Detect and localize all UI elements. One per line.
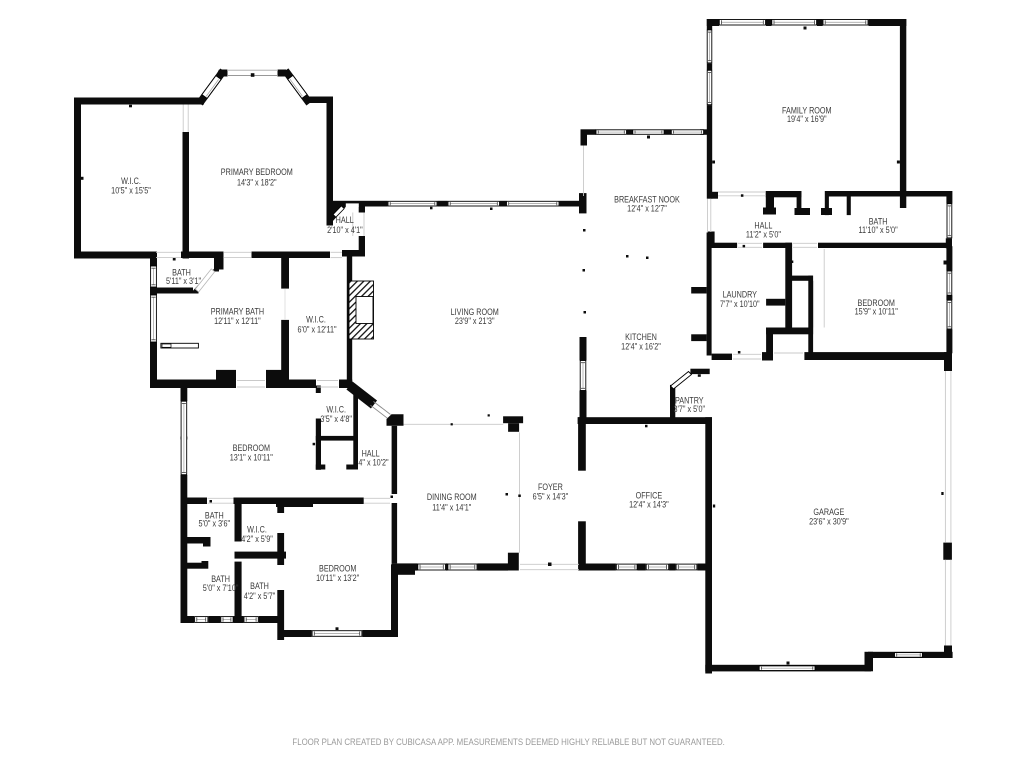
svg-text:6'0" x 12'11": 6'0" x 12'11" [297, 323, 336, 334]
svg-text:11'10" x 5'0": 11'10" x 5'0" [859, 224, 898, 235]
svg-text:FLOOR PLAN CREATED BY CUBICASA: FLOOR PLAN CREATED BY CUBICASA APP. MEAS… [292, 736, 724, 747]
svg-text:11'2" x 5'0": 11'2" x 5'0" [746, 229, 781, 240]
svg-text:12'11" x 12'11": 12'11" x 12'11" [214, 315, 261, 326]
svg-text:23'9" x 21'3": 23'9" x 21'3" [455, 315, 495, 326]
svg-text:19'4" x 16'9": 19'4" x 16'9" [787, 113, 827, 124]
svg-text:4" x 10'2": 4" x 10'2" [358, 457, 388, 468]
svg-text:15'9" x 10'11": 15'9" x 10'11" [855, 306, 898, 317]
svg-text:23'6" x 30'9": 23'6" x 30'9" [809, 515, 849, 526]
svg-text:5'0" x 3'6": 5'0" x 3'6" [198, 517, 230, 528]
svg-text:4'2" x 5'9": 4'2" x 5'9" [241, 533, 273, 544]
svg-text:10'11" x 13'2": 10'11" x 13'2" [316, 572, 359, 583]
svg-text:3'5" x 4'8": 3'5" x 4'8" [320, 413, 352, 424]
svg-text:5'11" x 3'1": 5'11" x 3'1" [166, 275, 201, 286]
svg-text:12'4" x 14'3": 12'4" x 14'3" [629, 499, 669, 510]
svg-text:2'10" x 4'1": 2'10" x 4'1" [327, 224, 363, 235]
svg-text:14'3" x 18'2": 14'3" x 18'2" [237, 176, 277, 187]
svg-text:6'5" x 14'3": 6'5" x 14'3" [533, 491, 569, 502]
svg-text:13'1" x 10'11": 13'1" x 10'11" [230, 452, 273, 463]
svg-text:4'2" x 5'7": 4'2" x 5'7" [244, 590, 276, 601]
svg-text:7'7" x 10'10": 7'7" x 10'10" [720, 298, 760, 309]
svg-text:10'5" x 15'5": 10'5" x 15'5" [111, 185, 151, 196]
svg-text:11'4" x 14'1": 11'4" x 14'1" [432, 501, 471, 512]
svg-text:12'4" x 16'2": 12'4" x 16'2" [621, 340, 661, 351]
svg-text:3'7" x 5'0": 3'7" x 5'0" [673, 403, 705, 414]
svg-text:5'0" x 7'10": 5'0" x 7'10" [203, 582, 239, 593]
svg-text:12'4" x 12'7": 12'4" x 12'7" [627, 203, 667, 214]
